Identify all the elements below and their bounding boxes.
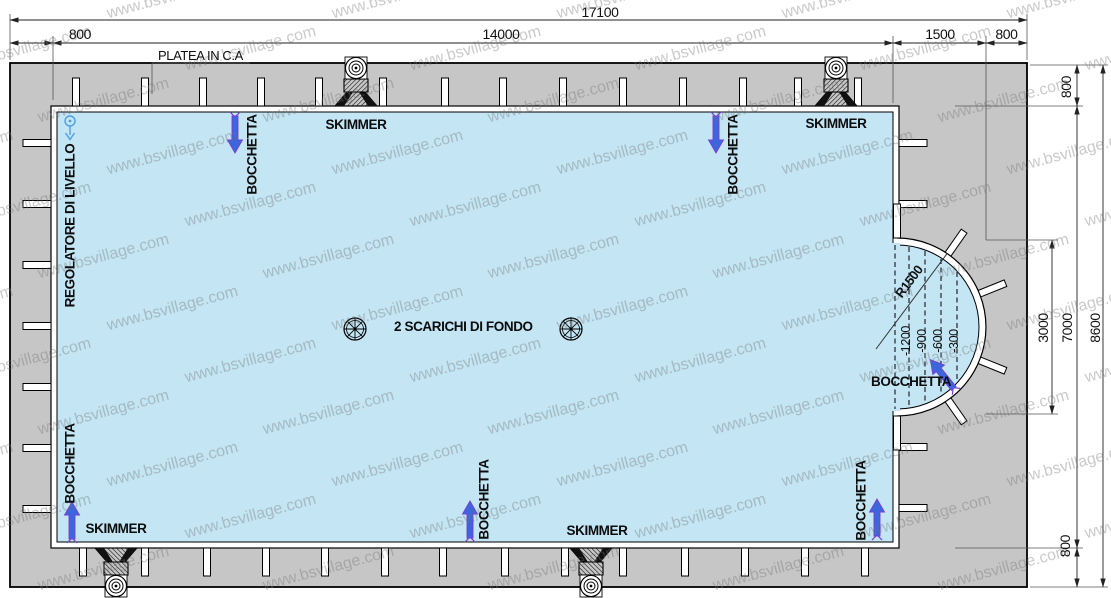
dim-pool-width: 14000	[472, 26, 530, 42]
skimmer-label-top-right: SKIMMER	[804, 116, 868, 131]
pool-plan-drawing: www.bsvillage.comwww.bsvillage.comwww.bs…	[0, 0, 1111, 598]
bocchetta-label-bottom-right: BOCCHETTA	[854, 460, 869, 542]
dim-overall-width: 17100	[575, 4, 625, 20]
depth-label-900: -900	[915, 320, 929, 362]
dim-overall-height: 8600	[1087, 307, 1103, 349]
skimmer-label-bottom-center: SKIMMER	[565, 523, 629, 538]
bocchetta-label-top-right: BOCCHETTA	[726, 114, 741, 196]
platea-label: PLATEA IN C.A	[158, 48, 243, 63]
bocchetta-label-bottom-left: BOCCHETTA	[63, 423, 78, 505]
depth-label-600: -600	[931, 320, 945, 362]
dim-margin-bottom: 800	[1057, 528, 1073, 564]
depth-label-300: -300	[947, 320, 961, 362]
stair-radius-label: R1500	[888, 257, 930, 306]
dim-stair-opening: 3000	[1035, 307, 1051, 349]
depth-label-1200: -1200	[899, 320, 913, 362]
skimmer-label-bottom-left: SKIMMER	[84, 521, 148, 536]
labels-layer: 17100 800 14000 1500 800 800 3000 7000 8…	[0, 0, 1111, 598]
dim-margin-top: 800	[1058, 69, 1074, 105]
skimmer-label-top-left: SKIMMER	[324, 117, 388, 132]
dim-stair-extension: 1500	[915, 26, 965, 42]
bocchetta-label-bottom-center: BOCCHETTA	[477, 459, 492, 541]
dim-pool-height: 7000	[1059, 307, 1075, 349]
regolatore-label: REGOLATORE DI LIVELLO	[63, 140, 78, 312]
bocchetta-label-top-left: BOCCHETTA	[245, 114, 260, 196]
bocchetta-label-stair: BOCCHETTA	[871, 374, 949, 389]
dim-margin-left: 800	[60, 26, 100, 42]
dim-margin-right: 800	[984, 26, 1029, 42]
scarichi-label: 2 SCARICHI DI FONDO	[394, 319, 528, 334]
